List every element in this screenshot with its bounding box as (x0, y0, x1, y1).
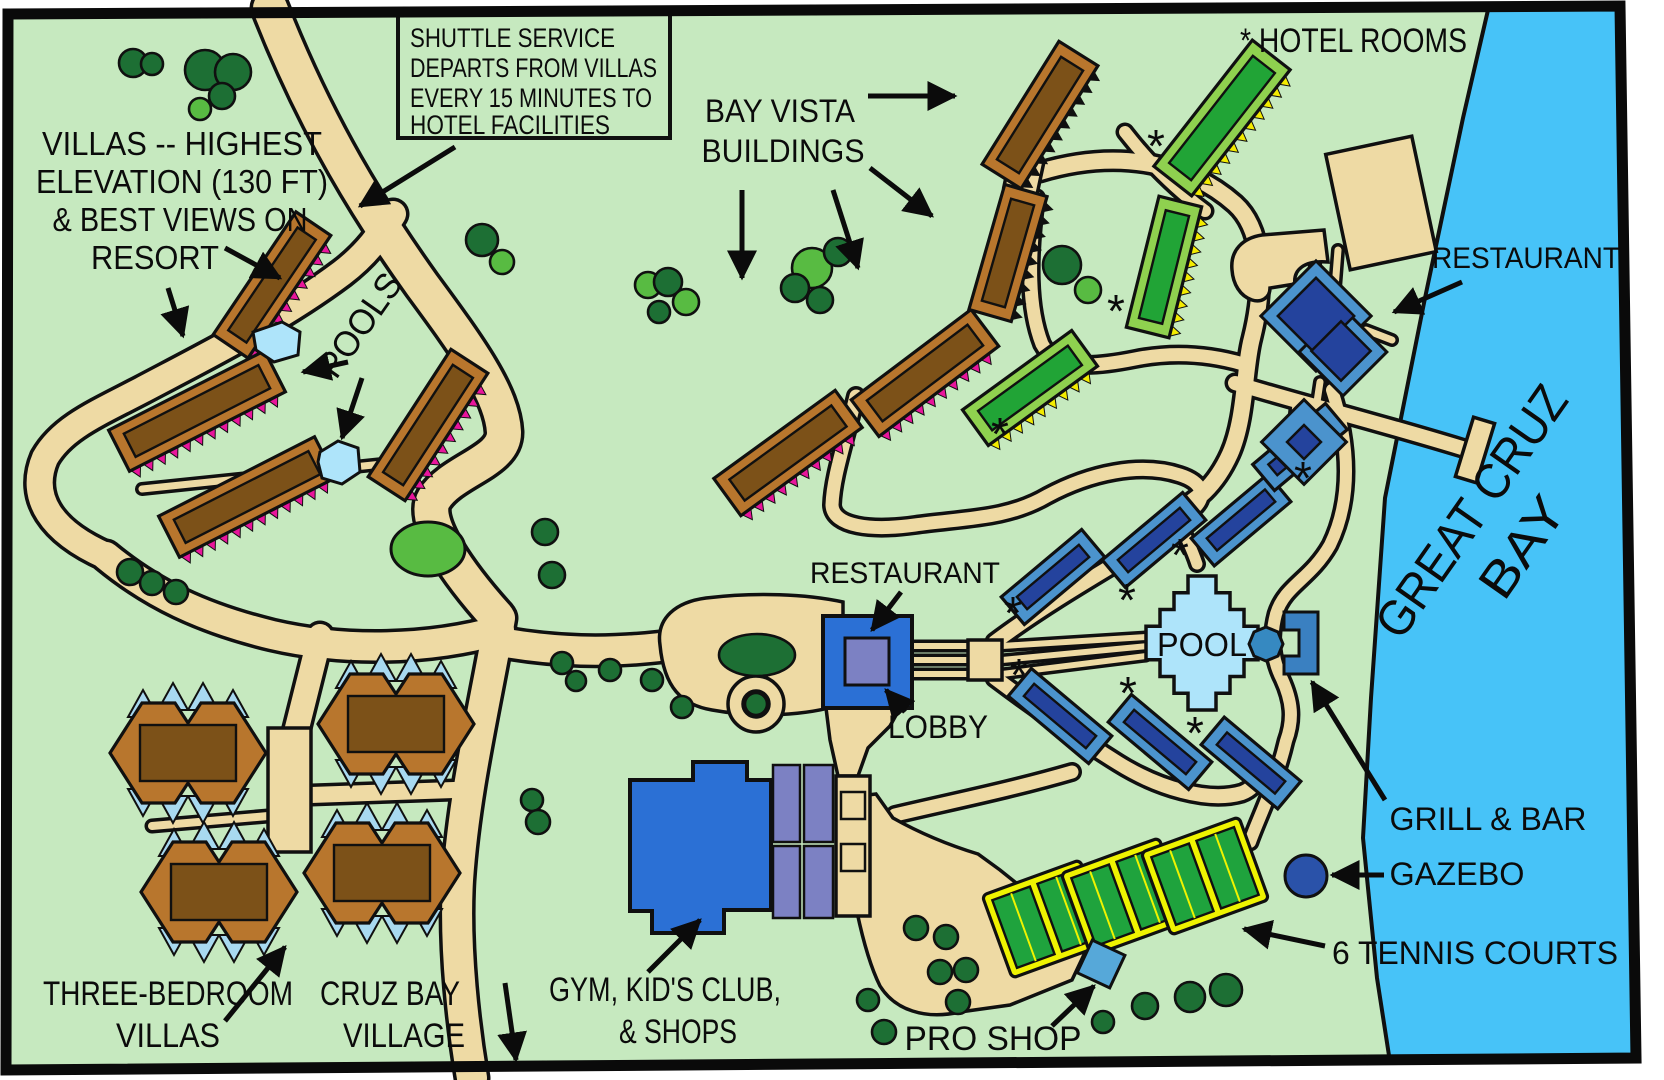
tree (189, 98, 211, 120)
tree (954, 958, 978, 982)
hotel-room-marker: * (1186, 707, 1204, 759)
restaurant-top-label: RESTAURANT (1432, 242, 1620, 275)
corridor-landing (841, 792, 865, 819)
hotel-room-marker: * (1294, 452, 1312, 504)
gazebo-label: GAZEBO (1390, 856, 1525, 892)
hotel-room-marker: * (1119, 667, 1137, 719)
tennis-courts-label: 6 TENNIS COURTS (1332, 935, 1618, 971)
shops-building (804, 765, 833, 842)
tree (466, 224, 498, 256)
tree (521, 789, 543, 811)
hotel-room-marker: * (1004, 587, 1022, 639)
hotel-room-marker: * (1118, 574, 1136, 626)
villas-note-line1: VILLAS -- HIGHEST (42, 125, 322, 162)
tree (391, 522, 465, 576)
restaurant-center-label: RESTAURANT (810, 557, 1000, 590)
tree (209, 83, 235, 109)
tree (551, 652, 573, 674)
corridor-landing (841, 844, 865, 871)
tree (1043, 246, 1081, 284)
shops-building (773, 846, 800, 918)
hotel-room-marker: * (1010, 649, 1028, 701)
tree (1175, 982, 1205, 1012)
hedge (719, 634, 795, 676)
road (500, 642, 660, 651)
bay-vista-line1: BAY VISTA (705, 93, 856, 129)
villa-roof (171, 864, 267, 920)
shuttle-note-line2: DEPARTS FROM VILLAS (410, 53, 657, 83)
gym-kids-club-building (630, 762, 771, 933)
lobby-label: LOBBY (888, 709, 988, 745)
tree (904, 916, 928, 940)
tree (490, 250, 514, 274)
cruz-bay-line1: CRUZ BAY (320, 975, 460, 1013)
shuttle-note-line4: HOTEL FACILITIES (410, 110, 610, 140)
hotel-rooms-label: * HOTEL ROOMS (1240, 22, 1467, 60)
villas-note-line2: ELEVATION (130 FT) (36, 163, 328, 200)
tree (140, 571, 164, 595)
shops-building (773, 765, 800, 842)
bay-vista-line2: BUILDINGS (702, 133, 865, 169)
tree (599, 659, 621, 681)
shuttle-note-line3: EVERY 15 MINUTES TO (410, 83, 652, 113)
tree (641, 669, 663, 691)
tree (671, 696, 693, 718)
tree (857, 989, 879, 1011)
tree (526, 810, 550, 834)
gazebo-building (1285, 855, 1327, 897)
tree (807, 287, 833, 313)
tree (539, 562, 565, 588)
tree (566, 671, 586, 691)
tree (141, 53, 163, 75)
villas-note-line3: & BEST VIEWS ON (53, 201, 308, 238)
villas-note-line4: RESORT (91, 239, 219, 276)
hotel-room-marker: * (1147, 120, 1165, 172)
tree (781, 274, 809, 302)
tree (928, 960, 952, 984)
tree (934, 925, 958, 949)
hotel-room-marker: * (1171, 529, 1189, 581)
restaurant-roof (845, 638, 889, 685)
shuttle-note-line1: SHUTTLE SERVICE (410, 23, 615, 53)
walkway-hub (968, 640, 1002, 680)
tree (946, 990, 970, 1014)
tree (532, 519, 558, 545)
cruz-bay-line2: VILLAGE (343, 1017, 465, 1055)
tree (745, 693, 767, 715)
pool-label: POOL (1157, 626, 1247, 663)
shops-building (804, 846, 833, 918)
tree (1210, 974, 1242, 1006)
three-bedroom-line2: VILLAS (116, 1017, 220, 1055)
villa-roof (140, 725, 236, 781)
tree (648, 301, 670, 323)
tree (872, 1020, 896, 1044)
tree (1132, 993, 1158, 1019)
tree (673, 289, 699, 315)
gym-label-line2: & SHOPS (619, 1013, 737, 1051)
grill-bar-label: GRILL & BAR (1390, 801, 1587, 837)
villa-roof (334, 845, 430, 901)
tree (1075, 277, 1101, 303)
tree (1092, 1011, 1114, 1033)
gym-label-line1: GYM, KID'S CLUB, (549, 971, 781, 1009)
hot-tub (1249, 627, 1283, 661)
hotel-room-marker: * (991, 408, 1009, 460)
villa-roof (348, 696, 444, 752)
resort-map: ********** SHUTTLE SERVICE DEPARTS FROM … (0, 0, 1664, 1080)
tree (164, 580, 188, 604)
villas-court (268, 728, 311, 852)
hotel-room-marker: * (1107, 285, 1125, 337)
